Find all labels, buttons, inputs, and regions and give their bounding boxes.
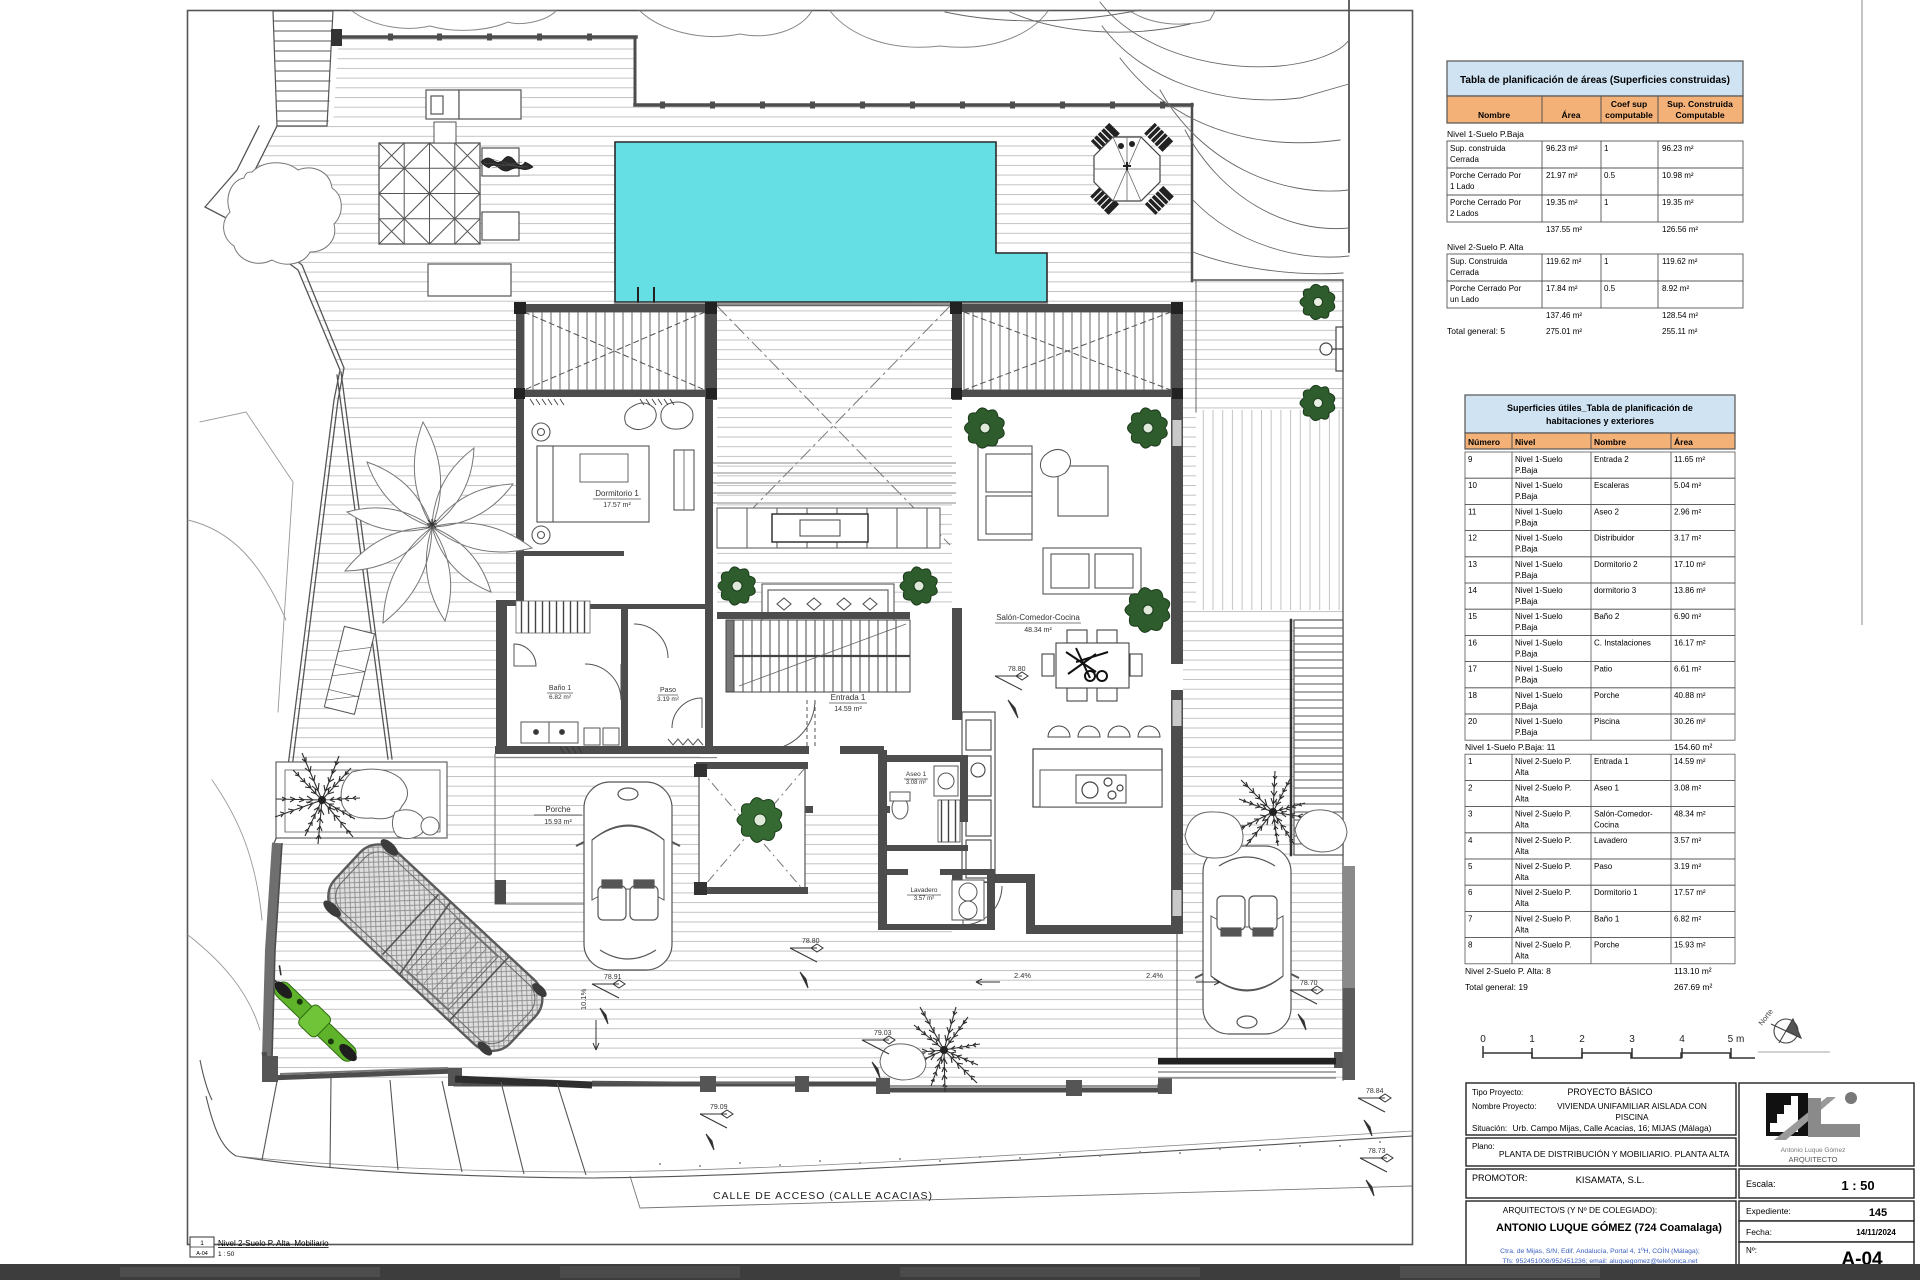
svg-text:96.23 m²: 96.23 m² xyxy=(1546,144,1578,153)
svg-text:Nombre: Nombre xyxy=(1594,437,1626,447)
svg-text:Nivel 1-Suelo: Nivel 1-Suelo xyxy=(1515,717,1563,726)
svg-text:Distribuidor: Distribuidor xyxy=(1594,534,1635,543)
svg-text:6.61 m²: 6.61 m² xyxy=(1674,665,1701,674)
svg-text:Escaleras: Escaleras xyxy=(1594,481,1629,490)
svg-text:Cerrada: Cerrada xyxy=(1450,268,1479,277)
svg-text:Aseo 1: Aseo 1 xyxy=(906,771,927,778)
svg-text:48.34 m²: 48.34 m² xyxy=(1024,627,1052,634)
svg-text:Porche: Porche xyxy=(545,805,571,814)
svg-text:113.10 m²: 113.10 m² xyxy=(1674,966,1712,976)
svg-text:Nº:: Nº: xyxy=(1746,1246,1757,1255)
svg-text:14.59 m²: 14.59 m² xyxy=(834,706,862,713)
svg-text:21.97 m²: 21.97 m² xyxy=(1546,171,1578,180)
svg-text:1: 1 xyxy=(1604,198,1609,207)
svg-text:P.Baja: P.Baja xyxy=(1515,649,1538,658)
svg-text:ANTONIO LUQUE GÓMEZ (724 Coama: ANTONIO LUQUE GÓMEZ (724 Coamalaga) xyxy=(1496,1221,1722,1234)
svg-text:40.88 m²: 40.88 m² xyxy=(1674,691,1706,700)
svg-text:48.34 m²: 48.34 m² xyxy=(1674,810,1706,819)
svg-text:2.96 m²: 2.96 m² xyxy=(1674,507,1701,516)
svg-text:10.1%: 10.1% xyxy=(579,988,588,1010)
svg-text:Lavadero: Lavadero xyxy=(910,887,937,894)
svg-text:79.09: 79.09 xyxy=(710,1104,728,1111)
svg-text:P.Baja: P.Baja xyxy=(1515,492,1538,501)
svg-text:96.23 m²: 96.23 m² xyxy=(1662,144,1694,153)
svg-text:128.54 m²: 128.54 m² xyxy=(1662,311,1698,320)
svg-text:KISAMATA, S.L.: KISAMATA, S.L. xyxy=(1576,1175,1645,1186)
svg-text:dormitorio 3: dormitorio 3 xyxy=(1594,586,1637,595)
svg-text:Dormitorio 1: Dormitorio 1 xyxy=(595,489,639,498)
svg-text:Nivel 2-Suelo P.: Nivel 2-Suelo P. xyxy=(1515,941,1571,950)
svg-text:P.Baja: P.Baja xyxy=(1515,623,1538,632)
svg-text:Paso: Paso xyxy=(1594,862,1613,871)
svg-text:1 : 50: 1 : 50 xyxy=(1841,1178,1874,1193)
svg-text:2 Lados: 2 Lados xyxy=(1450,209,1478,218)
svg-text:9: 9 xyxy=(1468,455,1473,464)
svg-text:Fecha:: Fecha: xyxy=(1746,1227,1772,1237)
svg-text:Lavadero: Lavadero xyxy=(1594,836,1628,845)
svg-text:Alta: Alta xyxy=(1515,925,1529,934)
svg-text:Nivel: Nivel xyxy=(1515,437,1535,447)
svg-text:7: 7 xyxy=(1468,914,1473,923)
svg-text:Dormitorio 2: Dormitorio 2 xyxy=(1594,560,1638,569)
svg-text:3: 3 xyxy=(1468,810,1473,819)
svg-text:3: 3 xyxy=(1629,1034,1635,1045)
svg-text:154.60 m²: 154.60 m² xyxy=(1674,742,1712,752)
svg-text:Nivel 1-Suelo: Nivel 1-Suelo xyxy=(1515,455,1563,464)
svg-text:3.08 m²: 3.08 m² xyxy=(1674,783,1701,792)
svg-text:Nivel 1-Suelo P.Baja: Nivel 1-Suelo P.Baja xyxy=(1447,129,1524,139)
svg-text:Tabla de planificación de área: Tabla de planificación de áreas (Superfi… xyxy=(1460,75,1730,86)
svg-text:Entrada 2: Entrada 2 xyxy=(1594,455,1629,464)
svg-text:1: 1 xyxy=(1468,757,1473,766)
svg-text:4: 4 xyxy=(1468,836,1473,845)
svg-text:14/11/2024: 14/11/2024 xyxy=(1856,1228,1896,1237)
svg-text:PROYECTO BÁSICO: PROYECTO BÁSICO xyxy=(1568,1087,1653,1097)
svg-text:ARQUITECTO/S (Y Nº DE COLEGIAD: ARQUITECTO/S (Y Nº DE COLEGIADO): xyxy=(1503,1205,1657,1215)
svg-text:0.5: 0.5 xyxy=(1604,284,1616,293)
svg-text:P.Baja: P.Baja xyxy=(1515,545,1538,554)
svg-text:1: 1 xyxy=(1604,257,1609,266)
svg-text:13.86 m²: 13.86 m² xyxy=(1674,586,1706,595)
svg-text:Nivel 1-Suelo: Nivel 1-Suelo xyxy=(1515,481,1563,490)
svg-text:habitaciones y exteriores: habitaciones y exteriores xyxy=(1546,416,1654,426)
svg-text:1: 1 xyxy=(1604,144,1609,153)
svg-text:P.Baja: P.Baja xyxy=(1515,676,1538,685)
svg-text:Alta: Alta xyxy=(1515,847,1529,856)
svg-text:10.98 m²: 10.98 m² xyxy=(1662,171,1694,180)
svg-text:19.35 m²: 19.35 m² xyxy=(1662,198,1694,207)
svg-text:2: 2 xyxy=(1579,1034,1585,1045)
svg-text:computable: computable xyxy=(1605,110,1653,120)
svg-text:1 Lado: 1 Lado xyxy=(1450,182,1475,191)
svg-text:Nivel 2-Suelo P.: Nivel 2-Suelo P. xyxy=(1515,862,1571,871)
svg-text:6.82 m²: 6.82 m² xyxy=(549,694,572,701)
svg-text:PISCINA: PISCINA xyxy=(1615,1112,1649,1122)
svg-text:Plano:: Plano: xyxy=(1472,1142,1495,1151)
svg-text:Área: Área xyxy=(1674,437,1693,447)
svg-text:Alta: Alta xyxy=(1515,821,1529,830)
svg-text:P.Baja: P.Baja xyxy=(1515,702,1538,711)
svg-text:3.19 m²: 3.19 m² xyxy=(657,696,680,703)
svg-text:Entrada 1: Entrada 1 xyxy=(831,693,866,702)
svg-text:Dormitorio 1: Dormitorio 1 xyxy=(1594,888,1638,897)
svg-text:Total general: 5: Total general: 5 xyxy=(1447,326,1505,336)
svg-text:17.10 m²: 17.10 m² xyxy=(1674,560,1706,569)
svg-text:Nivel 2-Suelo P. Alta: Nivel 2-Suelo P. Alta xyxy=(1447,242,1524,252)
svg-text:Nivel 1-Suelo: Nivel 1-Suelo xyxy=(1515,507,1563,516)
svg-text:PROMOTOR:: PROMOTOR: xyxy=(1472,1173,1527,1183)
svg-text:Baño 2: Baño 2 xyxy=(1594,612,1620,621)
svg-text:C. Instalaciones: C. Instalaciones xyxy=(1594,638,1651,647)
svg-text:19.35 m²: 19.35 m² xyxy=(1546,198,1578,207)
svg-text:3.19 m²: 3.19 m² xyxy=(1674,862,1701,871)
svg-text:78.84: 78.84 xyxy=(1366,1088,1384,1095)
svg-text:Alta: Alta xyxy=(1515,899,1529,908)
svg-text:6.82 m²: 6.82 m² xyxy=(1674,914,1701,923)
svg-text:14.59 m²: 14.59 m² xyxy=(1674,757,1706,766)
svg-text:Superficies útiles_Tabla de pl: Superficies útiles_Tabla de planificació… xyxy=(1507,403,1693,413)
svg-text:Nivel 1-Suelo: Nivel 1-Suelo xyxy=(1515,560,1563,569)
svg-text:Cerrada: Cerrada xyxy=(1450,155,1479,164)
svg-text:1: 1 xyxy=(1529,1034,1535,1045)
svg-text:30.26 m²: 30.26 m² xyxy=(1674,717,1706,726)
svg-text:3.08 m²: 3.08 m² xyxy=(906,780,926,786)
svg-text:Antonio Luque Gómez: Antonio Luque Gómez xyxy=(1781,1147,1846,1154)
svg-text:A-04: A-04 xyxy=(196,1251,208,1257)
svg-text:Nivel 2-Suelo P.: Nivel 2-Suelo P. xyxy=(1515,888,1571,897)
svg-text:Paso: Paso xyxy=(660,687,676,694)
svg-text:16: 16 xyxy=(1468,638,1477,647)
svg-text:119.62 m²: 119.62 m² xyxy=(1546,257,1582,266)
svg-text:Área: Área xyxy=(1562,110,1581,120)
svg-text:Nombre Proyecto:: Nombre Proyecto: xyxy=(1472,1102,1536,1111)
svg-text:3.57 m²: 3.57 m² xyxy=(914,896,934,902)
svg-text:0: 0 xyxy=(1480,1034,1486,1045)
svg-text:Computable: Computable xyxy=(1675,110,1724,120)
svg-text:1 : 50: 1 : 50 xyxy=(218,1251,235,1258)
svg-text:Número: Número xyxy=(1468,437,1500,447)
svg-text:P.Baja: P.Baja xyxy=(1515,466,1538,475)
svg-text:Nivel 2-Suelo P.: Nivel 2-Suelo P. xyxy=(1515,914,1571,923)
svg-text:Situación:: Situación: xyxy=(1472,1124,1507,1133)
svg-text:ARQUITECTO: ARQUITECTO xyxy=(1788,1155,1837,1164)
svg-text:Nivel 2-Suelo P. Alta_Mobiliar: Nivel 2-Suelo P. Alta_Mobiliario xyxy=(218,1239,329,1248)
svg-text:Tfs: 952451008/952451236; emai: Tfs: 952451008/952451236; email: aluqueg… xyxy=(1502,1258,1697,1265)
svg-text:18: 18 xyxy=(1468,691,1477,700)
svg-text:Alta: Alta xyxy=(1515,873,1529,882)
svg-text:17.57 m²: 17.57 m² xyxy=(603,502,631,509)
svg-text:126.56 m²: 126.56 m² xyxy=(1662,225,1698,234)
svg-text:15: 15 xyxy=(1468,612,1477,621)
svg-text:20: 20 xyxy=(1468,717,1477,726)
svg-text:Alta: Alta xyxy=(1515,952,1529,961)
svg-text:Total general: 19: Total general: 19 xyxy=(1465,982,1528,992)
svg-text:5: 5 xyxy=(1468,862,1473,871)
svg-text:Ctra. de Mijas, S/N, Edif. And: Ctra. de Mijas, S/N, Edif. Andalucía, Po… xyxy=(1500,1246,1700,1255)
svg-text:Porche: Porche xyxy=(1594,691,1620,700)
svg-text:15.93 m²: 15.93 m² xyxy=(544,819,572,826)
svg-text:6: 6 xyxy=(1468,888,1473,897)
svg-text:VIVIENDA UNIFAMILIAR AISLADA C: VIVIENDA UNIFAMILIAR AISLADA CON xyxy=(1557,1101,1707,1111)
svg-text:Patio: Patio xyxy=(1594,665,1613,674)
svg-text:Nivel 2-Suelo P.: Nivel 2-Suelo P. xyxy=(1515,810,1571,819)
svg-text:145: 145 xyxy=(1869,1207,1887,1219)
svg-text:Entrada 1: Entrada 1 xyxy=(1594,757,1629,766)
svg-text:11: 11 xyxy=(1468,507,1477,516)
svg-text:78.73: 78.73 xyxy=(1368,1148,1386,1155)
svg-text:Porche Cerrado Por: Porche Cerrado Por xyxy=(1450,171,1521,180)
svg-text:P.Baja: P.Baja xyxy=(1515,597,1538,606)
svg-text:P.Baja: P.Baja xyxy=(1515,571,1538,580)
svg-text:78.80: 78.80 xyxy=(802,938,820,945)
svg-text:17.57 m²: 17.57 m² xyxy=(1674,888,1706,897)
svg-text:Nivel 1-Suelo: Nivel 1-Suelo xyxy=(1515,586,1563,595)
svg-text:Baño 1: Baño 1 xyxy=(549,685,571,692)
svg-text:Porche Cerrado Por: Porche Cerrado Por xyxy=(1450,198,1521,207)
svg-text:Nivel 1-Suelo: Nivel 1-Suelo xyxy=(1515,665,1563,674)
svg-text:6.90 m²: 6.90 m² xyxy=(1674,612,1701,621)
svg-text:0.5: 0.5 xyxy=(1604,171,1616,180)
svg-text:11.65 m²: 11.65 m² xyxy=(1674,455,1705,464)
svg-text:Piscina: Piscina xyxy=(1594,717,1620,726)
svg-text:2.4%: 2.4% xyxy=(1014,971,1031,980)
svg-text:Porche: Porche xyxy=(1594,941,1620,950)
svg-text:Nivel 2-Suelo P.: Nivel 2-Suelo P. xyxy=(1515,757,1571,766)
svg-text:Sup. Construida: Sup. Construida xyxy=(1667,99,1733,109)
svg-text:un Lado: un Lado xyxy=(1450,295,1479,304)
svg-text:12: 12 xyxy=(1468,534,1477,543)
svg-text:PLANTA DE DISTRIBUCIÓN Y MOBIL: PLANTA DE DISTRIBUCIÓN Y MOBILIARIO. PLA… xyxy=(1499,1149,1729,1159)
svg-text:78.80: 78.80 xyxy=(1008,666,1026,673)
svg-text:Nivel 1-Suelo: Nivel 1-Suelo xyxy=(1515,534,1563,543)
svg-text:78.91: 78.91 xyxy=(604,974,622,981)
svg-text:P.Baja: P.Baja xyxy=(1515,518,1538,527)
svg-text:137.55 m²: 137.55 m² xyxy=(1546,225,1582,234)
svg-text:17.84 m²: 17.84 m² xyxy=(1546,284,1578,293)
svg-text:Nivel 1-Suelo P.Baja: 11: Nivel 1-Suelo P.Baja: 11 xyxy=(1465,742,1556,752)
svg-text:5 m: 5 m xyxy=(1728,1034,1745,1045)
svg-text:Nivel 1-Suelo: Nivel 1-Suelo xyxy=(1515,638,1563,647)
svg-text:255.11 m²: 255.11 m² xyxy=(1662,327,1698,336)
svg-text:8: 8 xyxy=(1468,941,1473,950)
svg-text:10: 10 xyxy=(1468,481,1477,490)
svg-text:8.92 m²: 8.92 m² xyxy=(1662,284,1689,293)
svg-text:Tipo Proyecto:: Tipo Proyecto: xyxy=(1472,1088,1523,1097)
svg-text:15.93 m²: 15.93 m² xyxy=(1674,941,1706,950)
svg-text:3.17 m²: 3.17 m² xyxy=(1674,534,1701,543)
svg-text:Alta: Alta xyxy=(1515,768,1529,777)
svg-text:Coef sup: Coef sup xyxy=(1611,99,1647,109)
svg-text:1: 1 xyxy=(200,1240,204,1247)
svg-text:Expediente:: Expediente: xyxy=(1746,1206,1791,1216)
svg-text:119.62 m²: 119.62 m² xyxy=(1662,257,1698,266)
svg-text:Nivel 2-Suelo P. Alta: 8: Nivel 2-Suelo P. Alta: 8 xyxy=(1465,966,1551,976)
svg-text:Sup. Construida: Sup. Construida xyxy=(1450,257,1508,266)
svg-text:Nivel 2-Suelo P.: Nivel 2-Suelo P. xyxy=(1515,783,1571,792)
svg-text:Salón-Comedor-Cocina: Salón-Comedor-Cocina xyxy=(996,613,1080,622)
svg-text:Escala:: Escala: xyxy=(1746,1179,1776,1189)
svg-text:137.46 m²: 137.46 m² xyxy=(1546,311,1582,320)
svg-text:Baño 1: Baño 1 xyxy=(1594,914,1620,923)
svg-text:Salón-Comedor-: Salón-Comedor- xyxy=(1594,810,1653,819)
svg-text:78.70: 78.70 xyxy=(1300,980,1318,987)
svg-text:Sup. construida: Sup. construida xyxy=(1450,144,1506,153)
svg-text:3.57 m²: 3.57 m² xyxy=(1674,836,1701,845)
svg-text:Aseo 1: Aseo 1 xyxy=(1594,783,1619,792)
svg-text:Porche Cerrado Por: Porche Cerrado Por xyxy=(1450,284,1521,293)
svg-text:Nivel 1-Suelo: Nivel 1-Suelo xyxy=(1515,691,1563,700)
svg-text:2: 2 xyxy=(1468,783,1473,792)
svg-text:275.01 m²: 275.01 m² xyxy=(1546,327,1582,336)
svg-text:CALLE DE ACCESO (CALLE ACACIAS: CALLE DE ACCESO (CALLE ACACIAS) xyxy=(713,1190,933,1202)
svg-text:Nivel 2-Suelo P.: Nivel 2-Suelo P. xyxy=(1515,836,1571,845)
svg-text:17: 17 xyxy=(1468,665,1477,674)
svg-text:267.69 m²: 267.69 m² xyxy=(1674,982,1712,992)
svg-text:Aseo 2: Aseo 2 xyxy=(1594,507,1619,516)
svg-text:2.4%: 2.4% xyxy=(1146,971,1163,980)
svg-text:13: 13 xyxy=(1468,560,1477,569)
svg-text:Alta: Alta xyxy=(1515,794,1529,803)
svg-text:79.03: 79.03 xyxy=(874,1030,892,1037)
svg-text:4: 4 xyxy=(1679,1034,1685,1045)
svg-text:16.17 m²: 16.17 m² xyxy=(1674,638,1706,647)
svg-text:Urb. Campo Mijas, Calle Acacia: Urb. Campo Mijas, Calle Acacias, 16; MIJ… xyxy=(1513,1123,1712,1133)
svg-text:Cocina: Cocina xyxy=(1594,821,1619,830)
svg-text:Nombre: Nombre xyxy=(1478,110,1510,120)
svg-text:5.04 m²: 5.04 m² xyxy=(1674,481,1701,490)
svg-text:P.Baja: P.Baja xyxy=(1515,728,1538,737)
svg-text:Nivel 1-Suelo: Nivel 1-Suelo xyxy=(1515,612,1563,621)
svg-text:14: 14 xyxy=(1468,586,1477,595)
